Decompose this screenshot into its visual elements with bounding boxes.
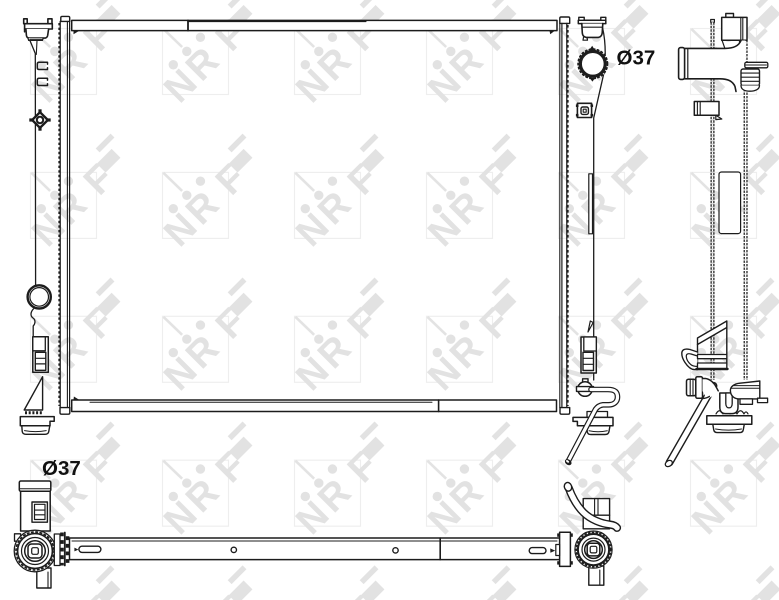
svg-text:Ø37: Ø37 [617, 46, 656, 69]
svg-text:Ø37: Ø37 [42, 457, 81, 480]
